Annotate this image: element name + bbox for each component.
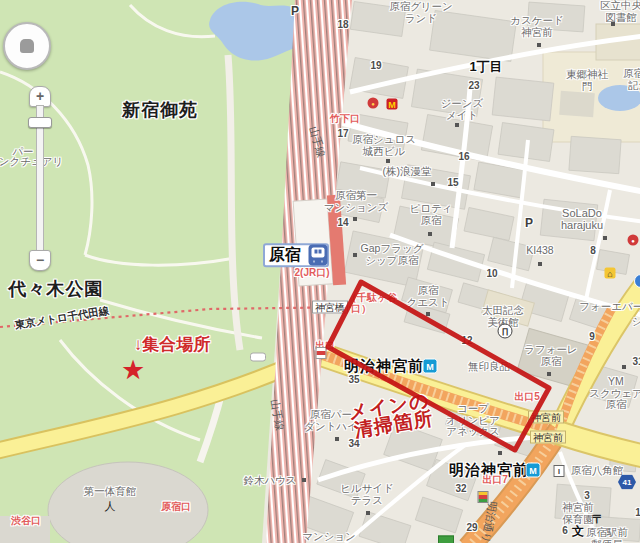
poi-dot <box>386 159 390 163</box>
poi-dot <box>622 365 626 369</box>
block-number: 15 <box>447 177 458 188</box>
zoom-control[interactable]: + − <box>29 86 51 107</box>
block-number: 6 <box>562 525 568 536</box>
block-number: 23 <box>468 80 479 91</box>
poi-dot <box>537 43 541 47</box>
elevator-stripes-icon[interactable] <box>316 347 327 359</box>
label-1chome: 1丁目 <box>469 60 502 74</box>
label-gap-flagship: Gapフラッグシップ原宿 <box>361 243 424 266</box>
label-shi-fragment: シ <box>632 316 640 328</box>
pan-right-arrow-icon[interactable] <box>37 41 47 51</box>
label-yamanote-line-1: 山手線 <box>307 125 327 158</box>
pan-up-arrow-icon[interactable] <box>22 26 32 36</box>
post-office-icon[interactable]: 〒 <box>592 511 604 528</box>
zoom-slider-handle[interactable] <box>28 117 52 128</box>
poi-dot <box>603 236 607 240</box>
label-mansion: マンション <box>302 531 356 543</box>
block-number: 35 <box>348 374 359 385</box>
block-number: 29 <box>466 522 477 533</box>
block-number: 10 <box>486 268 497 279</box>
zoom-in-button[interactable]: + <box>29 86 51 107</box>
block-number: 19 <box>370 60 381 71</box>
label-exit7: 出口7 <box>482 474 508 485</box>
parking-label: P <box>291 5 299 18</box>
label-jeans-mate: ジーンズメイト <box>441 98 484 121</box>
pan-hand-icon[interactable] <box>20 39 34 53</box>
metro-logo-icon[interactable]: M <box>526 463 541 478</box>
label-sendagaya-frag-1: （千駄ヶ谷 <box>347 292 397 303</box>
map-labels-layer: 新宿御苑代々木公園1丁目原宿グリーンランドカスケード神宮前東郷神社門区立中央図書… <box>0 0 640 543</box>
poi-dot <box>498 451 502 455</box>
poi-dot <box>431 182 435 186</box>
label-shinjuku-gyoen: 新宿御苑 <box>122 101 198 121</box>
block-number: 16 <box>458 151 469 162</box>
label-cascade-jingumae: カスケード神宮前 <box>510 15 563 38</box>
block-number: 1 <box>635 507 640 518</box>
label-exit5: 出口5 <box>514 391 540 402</box>
label-harajuku-greenland: 原宿グリーンランド <box>389 1 453 24</box>
label-harajuku-quest: 原宿クエスト <box>407 285 450 308</box>
poi-dot <box>366 511 370 515</box>
route-pill-icon[interactable] <box>250 353 266 362</box>
block-number: 17 <box>337 128 348 139</box>
block-number: 32 <box>455 483 466 494</box>
green-bar-icon[interactable] <box>438 536 454 543</box>
annotation-meeting-place: ↓集合場所 <box>134 336 211 355</box>
label-togo-shrine: 東郷神社門 <box>566 69 608 92</box>
label-bird-sanctuary-2: ンクチュアリ <box>0 156 63 168</box>
blue-poi-icon[interactable] <box>634 274 640 288</box>
map-viewport[interactable]: { "map": { "colors": { "park_green": "#c… <box>0 0 640 543</box>
poi-dot <box>353 253 357 257</box>
label-chiyoda-line: 東京メトロ千代田線 <box>14 305 110 331</box>
block-number: 9 <box>589 331 595 342</box>
label-daiichi-gym: 第一体育館 <box>84 486 137 498</box>
hotel-icon[interactable]: ⌂ <box>605 268 616 279</box>
metro-logo-icon[interactable]: M <box>423 359 438 374</box>
poi-dot <box>547 372 551 376</box>
label-post-office: 原宿駅前郵便局 <box>586 527 628 543</box>
label-ki438: KI438 <box>526 245 553 257</box>
label-solado: SoLaDoharajuku <box>561 207 603 231</box>
label-hillside-terrace: ヒルサイドテラス <box>340 483 394 506</box>
poi-dot <box>353 217 357 221</box>
zoom-out-button[interactable]: − <box>29 250 51 271</box>
school-icon[interactable]: 文 <box>572 523 584 540</box>
poi-dot <box>335 437 339 441</box>
label-exit2-jr: 2(JR口) <box>294 267 329 278</box>
jr-train-icon[interactable] <box>309 245 328 266</box>
label-harajuku-schloss: 原宿シュロス城西ビル <box>352 134 416 157</box>
pan-down-arrow-icon[interactable] <box>22 56 32 66</box>
mcdonalds-icon[interactable]: M <box>387 99 398 110</box>
label-meiji-jingumae-station-1: 明治神宮前 <box>344 358 424 375</box>
hakkakukan-poi-icon[interactable]: I <box>554 465 565 477</box>
block-number: 31 <box>632 356 640 367</box>
label-jingumae-box-1: 神宮前 <box>528 411 564 424</box>
label-coop-olympia: コープオリンピアアネックス <box>446 403 500 438</box>
label-meiji-dori: 明治通り <box>480 500 499 543</box>
block-number: 12 <box>461 335 472 346</box>
label-takeshita-exit: 竹下口 <box>330 113 360 124</box>
pan-control[interactable] <box>3 22 51 70</box>
label-central-library: 区立中央図書館 <box>600 0 640 23</box>
poi-dot <box>428 232 432 236</box>
poi-dot <box>455 123 459 127</box>
poi-dot <box>611 22 615 26</box>
label-forever21: フォーエバー21 <box>579 301 640 313</box>
gym-poi-icon[interactable]: 人 <box>105 499 116 514</box>
label-yamanote-line-2: 山手線 <box>269 398 286 431</box>
label-suzuki-house: 鈴木ハウス <box>243 475 296 487</box>
label-piloti-harajuku: ピロティ原宿 <box>410 203 453 226</box>
label-muji: 無印良品 <box>468 361 510 373</box>
label-jingumae-box-2: 神宮前 <box>530 431 566 444</box>
label-harajuku-exit: 原宿口 <box>161 501 191 512</box>
label-laforet: ラフォーレ原宿 <box>524 344 577 367</box>
label-hakkakukan: 原宿八角館 <box>571 465 624 477</box>
label-yoyogi-park: 代々木公園 <box>9 280 104 300</box>
museum-icon[interactable]: ∏ <box>498 324 513 339</box>
block-number: 18 <box>337 19 348 30</box>
poi-dot <box>426 312 430 316</box>
meeting-star-icon[interactable]: ★ <box>121 354 145 386</box>
label-ym-square: YMスクウェア原宿 <box>589 376 640 411</box>
poi-dot <box>538 262 542 266</box>
poi-dot <box>302 478 306 482</box>
block-number: 8 <box>590 245 596 256</box>
label-sendagaya-frag-2: 口） <box>351 303 371 314</box>
parking-label: P <box>525 217 533 230</box>
label-romando: (株)浪漫堂 <box>383 166 432 178</box>
block-number: 3 <box>584 490 590 501</box>
label-togo-memorial: 原宿東郷記念館 <box>623 68 640 91</box>
label-daiichi-mansions: 原宿第一マンションズ <box>324 190 388 213</box>
pan-left-arrow-icon[interactable] <box>7 41 17 51</box>
solado-poi-icon[interactable]: ● <box>628 235 639 246</box>
poi-stripes-icon[interactable] <box>478 491 489 503</box>
block-number: 14 <box>337 217 348 228</box>
label-shibuya-exit: 渋谷口 <box>11 515 41 526</box>
label-jingubashi: 神宮橋 <box>312 301 348 314</box>
restaurant-icon[interactable]: ● <box>368 98 379 109</box>
